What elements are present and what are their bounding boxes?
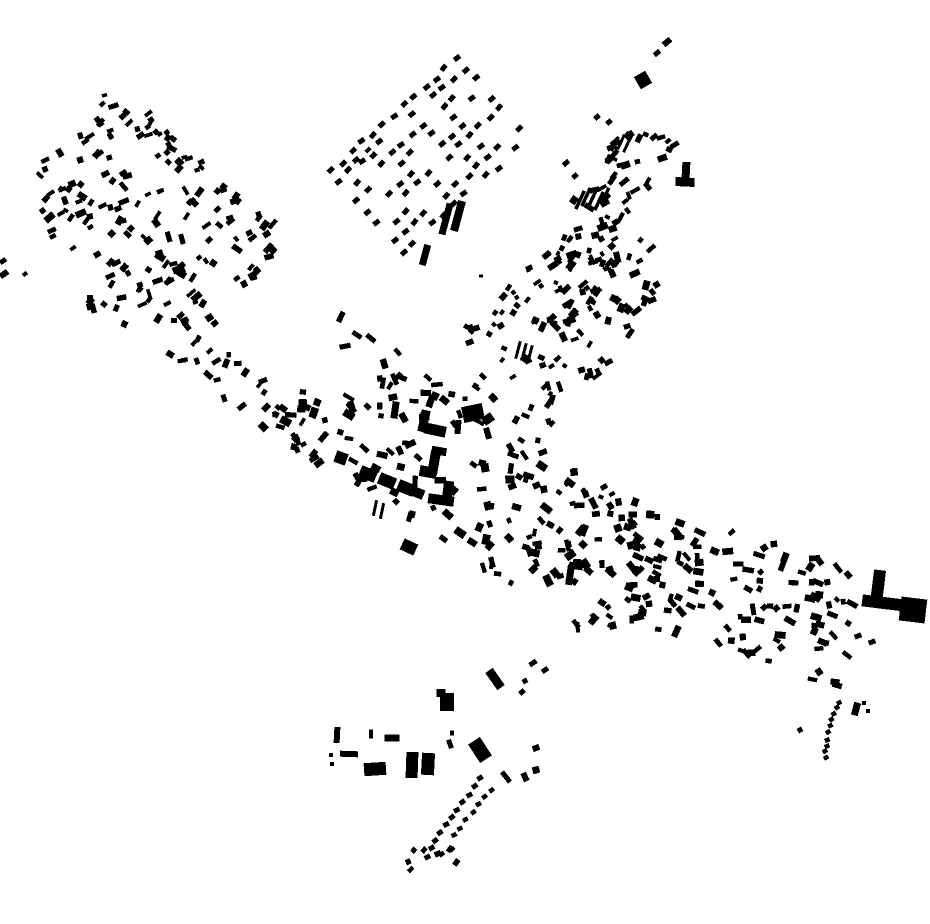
building — [339, 343, 351, 350]
building — [466, 537, 477, 548]
building — [144, 132, 154, 138]
building — [196, 254, 203, 261]
building — [483, 153, 492, 161]
building — [152, 277, 164, 285]
building — [442, 191, 450, 200]
building — [181, 186, 189, 196]
building — [760, 543, 769, 552]
building — [100, 170, 110, 179]
building — [646, 510, 655, 518]
building — [824, 737, 830, 743]
building — [453, 526, 467, 539]
building — [458, 122, 467, 130]
building — [468, 737, 492, 763]
building — [465, 131, 473, 140]
building — [67, 213, 75, 222]
building — [783, 615, 796, 626]
building — [593, 113, 601, 121]
building — [588, 614, 600, 626]
building — [511, 503, 522, 512]
building — [608, 224, 618, 233]
building — [623, 323, 631, 330]
building — [508, 579, 515, 586]
building — [521, 412, 530, 419]
building — [405, 148, 413, 157]
building — [653, 49, 662, 57]
building — [410, 847, 417, 854]
building — [509, 374, 517, 381]
figure-ground-map — [0, 0, 930, 924]
building — [828, 716, 835, 723]
building — [233, 236, 239, 243]
building — [491, 321, 497, 327]
building — [87, 198, 94, 206]
building — [69, 245, 76, 252]
building — [424, 169, 432, 178]
building — [349, 146, 357, 154]
building — [615, 498, 622, 506]
building — [652, 280, 661, 289]
building — [614, 534, 625, 545]
building — [474, 522, 484, 533]
building — [205, 236, 214, 245]
building — [528, 404, 535, 412]
building — [428, 218, 437, 226]
east-band-tail — [854, 632, 876, 645]
building — [488, 393, 499, 404]
building — [390, 112, 399, 120]
building — [713, 637, 723, 647]
building — [264, 253, 275, 261]
bottom-row-west — [329, 727, 400, 766]
building — [344, 166, 352, 175]
building — [359, 443, 370, 453]
building — [832, 681, 843, 689]
building — [698, 603, 706, 609]
building — [495, 103, 503, 112]
building — [423, 83, 432, 91]
building — [493, 143, 501, 152]
building — [604, 358, 614, 367]
building — [421, 753, 435, 776]
building — [593, 310, 602, 319]
building — [507, 463, 514, 474]
building — [750, 603, 757, 615]
building — [449, 113, 458, 121]
building — [514, 341, 522, 359]
building — [369, 729, 373, 738]
building — [198, 299, 207, 309]
building — [113, 304, 120, 312]
building — [510, 289, 516, 295]
building — [546, 520, 556, 529]
building — [352, 156, 361, 164]
building — [827, 723, 833, 729]
building — [826, 601, 833, 609]
building — [833, 596, 840, 603]
building — [620, 160, 631, 170]
building — [419, 209, 427, 218]
building — [431, 837, 439, 845]
building — [400, 538, 419, 555]
building — [628, 268, 640, 278]
building — [671, 625, 682, 638]
building — [459, 189, 468, 197]
building — [177, 358, 186, 363]
building — [488, 787, 495, 794]
building — [448, 132, 457, 140]
building — [99, 100, 106, 107]
building — [380, 358, 389, 369]
building — [369, 131, 377, 140]
building — [520, 450, 529, 461]
building — [470, 809, 477, 816]
building — [364, 762, 387, 777]
building — [419, 122, 428, 130]
building — [194, 167, 200, 172]
building — [433, 75, 442, 83]
building — [598, 494, 604, 499]
building — [501, 345, 508, 351]
building — [472, 73, 481, 81]
building — [213, 205, 221, 213]
building — [424, 854, 432, 861]
building — [770, 540, 777, 547]
building — [396, 463, 405, 472]
building — [486, 520, 493, 528]
building — [385, 189, 393, 198]
cluster-northeast-band — [547, 130, 680, 306]
building — [386, 381, 394, 390]
building — [333, 450, 348, 465]
building — [565, 317, 573, 328]
building — [144, 191, 151, 197]
building — [540, 502, 554, 515]
building — [538, 448, 548, 456]
building — [419, 244, 431, 266]
building — [114, 205, 123, 213]
building — [605, 613, 613, 620]
building — [485, 668, 504, 690]
building — [662, 37, 673, 47]
building — [375, 137, 384, 145]
cluster-left-main — [39, 93, 278, 332]
building — [153, 313, 163, 324]
building — [487, 95, 496, 103]
building — [391, 236, 400, 244]
building — [419, 414, 430, 421]
building — [515, 473, 524, 481]
building — [506, 442, 515, 453]
building — [408, 110, 417, 118]
building — [628, 511, 637, 517]
building — [782, 604, 791, 609]
building — [197, 159, 205, 166]
building — [868, 638, 876, 645]
building — [299, 389, 306, 395]
building — [137, 301, 147, 308]
building — [693, 527, 706, 537]
building — [599, 251, 605, 257]
building — [120, 320, 128, 328]
building — [814, 646, 824, 651]
building — [630, 186, 641, 195]
building — [505, 475, 515, 483]
building — [653, 564, 662, 570]
building — [209, 259, 218, 268]
building — [465, 338, 474, 346]
building — [165, 231, 173, 243]
building — [788, 580, 798, 585]
building — [824, 743, 830, 749]
building — [805, 561, 815, 572]
building — [334, 727, 341, 743]
building — [49, 233, 57, 240]
building — [453, 807, 461, 814]
building — [851, 702, 861, 716]
building — [334, 178, 343, 186]
building — [509, 309, 517, 317]
plaza-west-range — [333, 450, 425, 500]
building — [146, 289, 152, 300]
building — [586, 247, 592, 254]
building — [642, 280, 651, 291]
building — [739, 633, 746, 640]
building — [899, 597, 928, 624]
building — [553, 280, 558, 285]
building — [575, 233, 582, 240]
building — [409, 399, 418, 404]
building — [377, 375, 383, 382]
building — [420, 846, 428, 854]
building — [526, 534, 533, 540]
bottom-blocks — [364, 668, 505, 778]
building — [462, 66, 471, 74]
building — [336, 311, 346, 323]
building — [261, 402, 271, 412]
building — [102, 93, 108, 98]
building — [340, 751, 358, 758]
building — [423, 422, 447, 437]
building — [445, 153, 454, 161]
building — [767, 603, 774, 609]
building — [664, 138, 671, 145]
building — [106, 154, 113, 161]
building — [55, 148, 64, 158]
building — [480, 463, 489, 473]
building — [535, 437, 541, 443]
building — [75, 199, 83, 205]
building — [618, 514, 625, 521]
cluster-junction — [472, 218, 661, 427]
building — [134, 200, 141, 208]
building — [353, 178, 361, 187]
building — [118, 197, 130, 206]
building — [504, 533, 515, 544]
building — [450, 75, 458, 83]
building — [515, 124, 523, 133]
building — [578, 366, 586, 374]
building — [654, 538, 665, 549]
building — [481, 793, 488, 800]
building — [213, 377, 221, 383]
building — [558, 548, 566, 553]
building — [392, 217, 401, 225]
building — [408, 130, 417, 138]
building — [518, 688, 526, 696]
building — [479, 372, 487, 380]
building — [571, 172, 579, 180]
building — [486, 113, 495, 121]
building — [742, 566, 754, 573]
building — [115, 215, 125, 226]
building — [396, 180, 405, 188]
building — [674, 535, 682, 541]
building — [430, 504, 437, 511]
building — [472, 161, 480, 170]
building — [693, 568, 704, 576]
building — [377, 159, 385, 168]
building — [211, 357, 222, 366]
building — [178, 233, 186, 244]
building — [842, 650, 853, 660]
building — [517, 436, 525, 444]
building — [451, 180, 460, 188]
building — [454, 140, 463, 148]
building — [625, 328, 635, 339]
building — [840, 599, 846, 605]
building — [712, 599, 724, 610]
building — [741, 616, 751, 623]
building — [524, 296, 531, 303]
building — [535, 460, 548, 472]
building — [608, 491, 615, 497]
building — [377, 472, 397, 489]
building — [448, 813, 456, 821]
building — [147, 116, 154, 123]
building — [607, 510, 614, 517]
building — [262, 230, 271, 239]
building — [107, 229, 116, 238]
building — [377, 402, 383, 409]
building — [465, 172, 474, 180]
building — [728, 637, 735, 644]
building — [570, 336, 579, 342]
building — [862, 701, 866, 705]
slash-group-plaza-south — [372, 500, 385, 519]
building — [171, 318, 177, 323]
building — [532, 481, 541, 490]
building — [339, 159, 347, 167]
building — [475, 801, 482, 807]
building — [222, 358, 231, 368]
building — [400, 248, 409, 256]
building — [555, 489, 562, 496]
building — [337, 429, 345, 436]
building — [397, 141, 406, 149]
building — [0, 269, 9, 279]
map-canvas — [0, 0, 930, 924]
building — [586, 340, 593, 348]
building — [558, 331, 568, 342]
building — [512, 415, 521, 424]
building — [376, 451, 388, 459]
building — [810, 612, 823, 622]
building — [555, 526, 563, 534]
building — [682, 563, 694, 574]
building — [462, 816, 469, 823]
building — [395, 445, 404, 456]
building — [682, 162, 691, 178]
building — [438, 203, 453, 236]
building — [578, 539, 588, 549]
building — [642, 131, 649, 138]
building — [401, 227, 410, 235]
building — [377, 120, 386, 128]
building — [633, 613, 645, 622]
building — [655, 626, 662, 632]
building — [797, 569, 806, 576]
building — [257, 421, 269, 433]
building — [409, 92, 418, 100]
orchard-bars — [419, 200, 466, 266]
building — [330, 762, 334, 766]
northeast-wedge — [634, 71, 652, 90]
building — [448, 391, 456, 398]
building — [728, 528, 736, 536]
building — [100, 300, 108, 308]
building — [194, 357, 201, 365]
building — [76, 156, 84, 164]
building — [392, 498, 400, 506]
building — [778, 561, 787, 572]
building — [562, 363, 568, 369]
building — [777, 643, 786, 652]
building — [548, 363, 555, 369]
building — [86, 213, 93, 220]
building — [476, 774, 484, 781]
building — [812, 578, 824, 587]
building — [108, 102, 120, 110]
building — [824, 579, 831, 586]
building — [793, 603, 800, 613]
building-footprints-layer — [0, 37, 927, 873]
building — [183, 212, 190, 221]
building — [429, 91, 438, 99]
building — [532, 528, 537, 536]
building — [462, 396, 467, 401]
building — [356, 475, 368, 481]
building — [453, 54, 462, 62]
cluster-left-top-spur — [144, 109, 205, 173]
building — [84, 132, 95, 141]
building — [385, 735, 400, 742]
building — [40, 156, 50, 164]
building — [397, 159, 406, 167]
building — [600, 483, 609, 491]
building — [329, 753, 333, 757]
building — [587, 305, 594, 312]
building — [442, 508, 455, 520]
building — [499, 309, 505, 315]
building — [558, 245, 565, 252]
building — [538, 321, 548, 333]
building — [234, 361, 242, 366]
building — [463, 153, 471, 162]
building — [425, 396, 435, 409]
building — [468, 94, 477, 102]
building — [829, 630, 839, 640]
